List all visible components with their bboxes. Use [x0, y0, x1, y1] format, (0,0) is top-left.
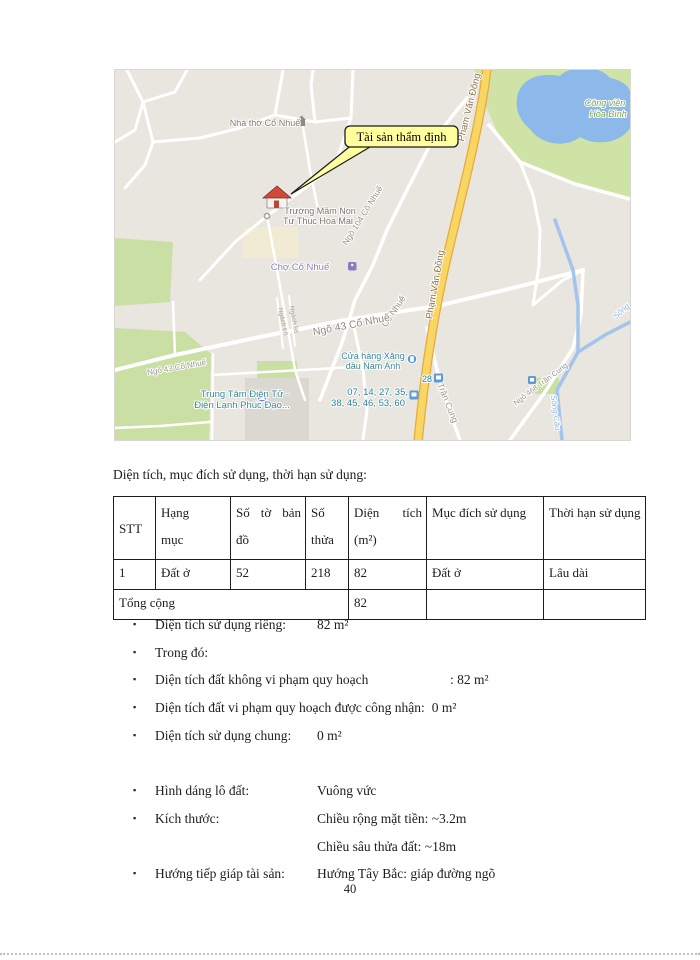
list-item: ▪ Diện tích đất không vi phạm quy hoạch …	[133, 666, 613, 694]
map-canvas: Nhà thờ Cổ Nhuế Trường Mầm Non Tư Thục H…	[115, 70, 630, 440]
callout-text: Tài sản thẩm định	[357, 130, 448, 144]
map-label-school-2: Tư Thục Hoa Mai	[283, 216, 353, 226]
column-header-mucdich: Mục đích sử dụng	[427, 497, 544, 560]
map-label-electronics-2: Điện Lạnh Phúc Đạo...	[194, 400, 290, 411]
map-label-bus-28: 28	[422, 374, 432, 384]
column-header-thoihan: Thời hạn sử dụng	[544, 497, 646, 560]
item-label: Diện tích đất không vi phạm quy hoạch	[155, 666, 450, 694]
section-intro: Diện tích, mục đích sử dụng, thời hạn sử…	[113, 467, 367, 483]
location-map-image: Nhà thờ Cổ Nhuế Trường Mầm Non Tư Thục H…	[115, 70, 630, 440]
map-label-bus-lines-2: 38, 45, 46, 53, 60	[331, 398, 405, 409]
map-label-electronics-1: Trung Tâm Điện Tử -	[201, 389, 290, 400]
table-cell: 218	[306, 560, 349, 590]
column-header-hangmuc: Hạng mục	[156, 497, 231, 560]
list-item: ▪ Trong đó:	[133, 639, 613, 667]
table-cell: 52	[231, 560, 306, 590]
item-value: Vuông vức	[317, 777, 376, 805]
item-value: 82 m²	[317, 611, 348, 639]
bullet-icon: ▪	[133, 611, 155, 639]
table-cell: 1	[114, 560, 156, 590]
bullet-icon: ▪	[133, 666, 155, 694]
map-label-park-1: Công viên	[585, 98, 626, 108]
item-label: Diện tích sử dụng chung:	[155, 722, 317, 750]
green-patch	[115, 238, 173, 306]
item-values: Chiều rộng mặt tiền: ~3.2m Chiều sâu thử…	[317, 805, 466, 860]
property-details-list: ▪ Diện tích sử dụng riêng: 82 m² ▪ Trong…	[133, 611, 613, 888]
bullet-icon: ▪	[133, 777, 155, 805]
column-header-dientich: Diện tích (m²)	[349, 497, 427, 560]
document-page: { "map": { "callout": "Tài sản thẩm định…	[0, 0, 700, 960]
item-value: : 82 m²	[450, 666, 489, 694]
table-cell: Đất ở	[156, 560, 231, 590]
gas-station-icon	[407, 354, 417, 364]
item-label: Trong đó:	[155, 639, 317, 667]
bus-stop-icon	[434, 374, 443, 383]
list-item: ▪ Diện tích đất vi phạm quy hoạch được c…	[133, 694, 613, 722]
item-label: Diện tích sử dụng riêng:	[155, 611, 317, 639]
bullet-icon: ▪	[133, 722, 155, 750]
table-cell: Đất ở	[427, 560, 544, 590]
bullet-icon: ▪	[133, 694, 155, 722]
page-number: 40	[0, 882, 700, 897]
list-item: ▪ Kích thước: Chiều rộng mặt tiền: ~3.2m…	[133, 805, 613, 860]
map-label-gas-1: Cửa hàng Xăng	[341, 351, 405, 361]
map-label-gas-2: dầu Nam Anh	[346, 361, 401, 371]
page-edge-divider	[0, 953, 700, 955]
item-value: Chiều sâu thửa đất: ~18m	[317, 833, 466, 861]
map-label-church: Nhà thờ Cổ Nhuế	[230, 118, 300, 128]
list-item: ▪ Diện tích sử dụng riêng: 82 m²	[133, 611, 613, 639]
land-use-table: STT Hạng mục Số tờ bản đồ Số thửa Diện t…	[113, 496, 646, 620]
list-item: ▪ Diện tích sử dụng chung: 0 m²	[133, 722, 613, 777]
item-value: Chiều rộng mặt tiền: ~3.2m	[317, 805, 466, 833]
table-cell: 82	[349, 560, 427, 590]
map-label-bus-lines-1: 07, 14, 27, 35,	[347, 387, 408, 398]
item-label: Diện tích đất vi phạm quy hoạch được côn…	[155, 694, 425, 722]
market-icon	[348, 262, 357, 271]
item-value: 0 m²	[432, 694, 457, 722]
school-dot-icon	[264, 213, 269, 218]
item-label: Hình dáng lô đất:	[155, 777, 317, 805]
column-header-sothua: Số thửa	[306, 497, 349, 560]
map-label-school-1: Trường Mầm Non	[284, 206, 356, 216]
bus-stop-icon	[410, 391, 419, 400]
bullet-icon: ▪	[133, 639, 155, 667]
table-header-row: STT Hạng mục Số tờ bản đồ Số thửa Diện t…	[114, 497, 646, 560]
table-row: 1 Đất ở 52 218 82 Đất ở Lâu dài	[114, 560, 646, 590]
item-value: 0 m²	[317, 722, 342, 750]
column-header-sotobando: Số tờ bản đồ	[231, 497, 306, 560]
map-label-park-2: Hòa Bình	[589, 109, 627, 119]
item-label: Kích thước:	[155, 805, 317, 833]
list-item: ▪ Hình dáng lô đất: Vuông vức	[133, 777, 613, 805]
column-header-stt: STT	[114, 497, 156, 560]
map-label-market: Chợ Cổ Nhuế	[271, 262, 330, 273]
bullet-icon: ▪	[133, 805, 155, 833]
table-cell: Lâu dài	[544, 560, 646, 590]
